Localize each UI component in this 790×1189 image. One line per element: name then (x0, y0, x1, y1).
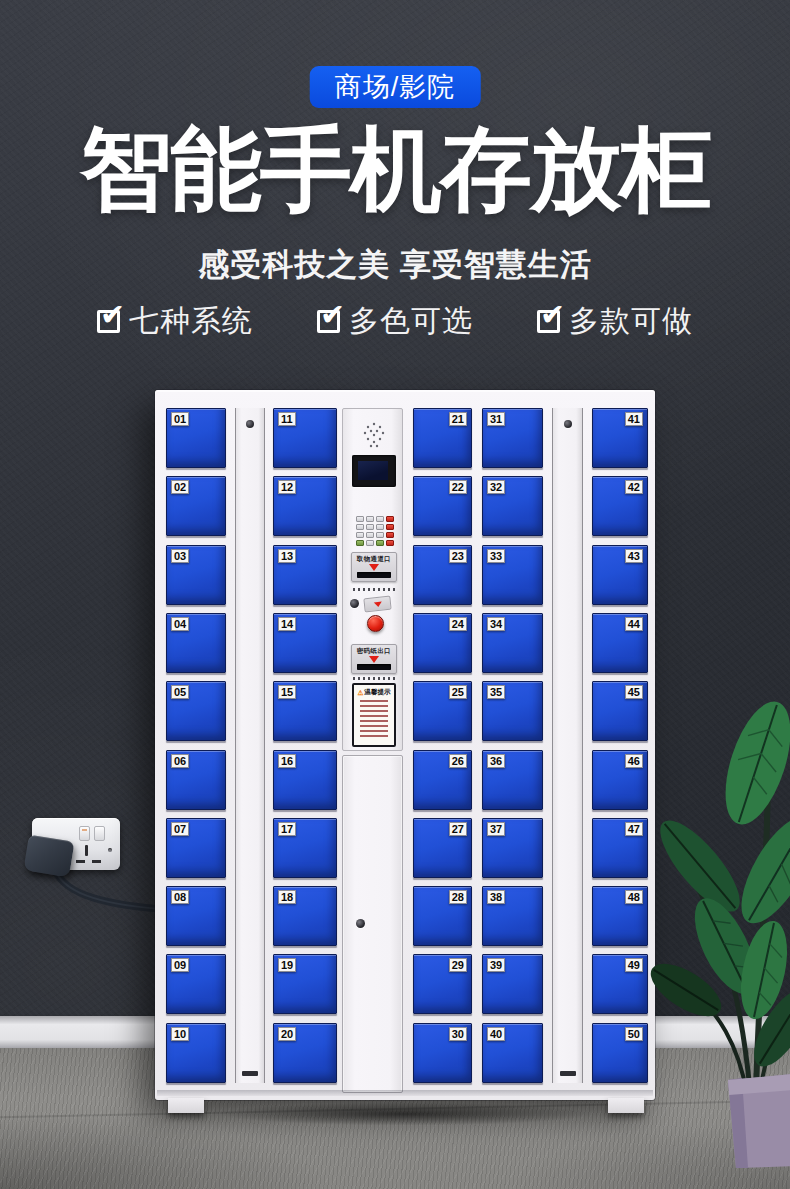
locker-door-07: 07 (166, 818, 226, 878)
door-number-tag: 11 (278, 412, 296, 426)
keypad-key (386, 540, 394, 546)
checkbox-icon: ✔ (317, 310, 340, 333)
door-number-tag: 07 (171, 822, 189, 836)
door-number-tag: 44 (625, 617, 643, 631)
locker-door-35: 35 (482, 681, 543, 741)
keypad-key (356, 532, 364, 538)
door-number-tag: 21 (449, 412, 467, 426)
locker-door-19: 19 (273, 954, 337, 1014)
door-number-tag: 39 (487, 958, 505, 972)
warning-title-text: 温馨提示 (364, 687, 391, 697)
lock-strip (552, 408, 583, 1083)
lock-icon (356, 919, 365, 928)
warning-notice: ⚠ 温馨提示 (352, 683, 396, 747)
door-number-tag: 04 (171, 617, 189, 631)
check-icon: ✔ (540, 300, 565, 330)
pickup-slot: 取物通道口 (351, 552, 397, 582)
keypad-key (366, 532, 374, 538)
subtitle: 感受科技之美 享受智慧生活 (0, 244, 790, 286)
locker-door-13: 13 (273, 545, 337, 605)
door-number-tag: 16 (278, 754, 296, 768)
slot-opening (357, 572, 391, 578)
door-number-tag: 30 (449, 1027, 467, 1041)
potted-plant (630, 698, 790, 1188)
vent-dots (353, 588, 395, 591)
lock-strip (235, 408, 265, 1083)
locker-door-14: 14 (273, 613, 337, 673)
cabinet-floor-shadow (148, 1098, 662, 1130)
door-number-tag: 43 (625, 549, 643, 563)
door-number-tag: 32 (487, 480, 505, 494)
locker-door-25: 25 (413, 681, 472, 741)
door-number-tag: 19 (278, 958, 296, 972)
feature-label: 多款可做 (569, 301, 693, 342)
vent-dots (353, 677, 395, 680)
door-number-tag: 45 (625, 685, 643, 699)
door-number-tag: 34 (487, 617, 505, 631)
page-title: 智能手机存放柜 (0, 116, 790, 222)
door-number-tag: 37 (487, 822, 505, 836)
keypad-key (366, 540, 374, 546)
feature-list: ✔ 七种系统 ✔ 多色可选 ✔ 多款可做 (0, 301, 790, 342)
door-number-tag: 31 (487, 412, 505, 426)
locker-door-39: 39 (482, 954, 543, 1014)
strip-notch (242, 1071, 258, 1076)
door-number-tag: 26 (449, 754, 467, 768)
door-number-tag: 12 (278, 480, 296, 494)
locker-door-42: 42 (592, 476, 648, 536)
locker-door-02: 02 (166, 476, 226, 536)
door-number-tag: 41 (625, 412, 643, 426)
socket-switch (94, 826, 105, 841)
door-number-tag: 02 (171, 480, 189, 494)
lcd-screen (352, 455, 396, 487)
keypad-key (376, 524, 384, 530)
door-number-tag: 40 (487, 1027, 505, 1041)
door-number-tag: 25 (449, 685, 467, 699)
locker-door-33: 33 (482, 545, 543, 605)
door-number-tag: 01 (171, 412, 189, 426)
locker-door-37: 37 (482, 818, 543, 878)
keypad (356, 516, 394, 546)
locker-door-15: 15 (273, 681, 337, 741)
keypad-key (376, 516, 384, 522)
locker-door-34: 34 (482, 613, 543, 673)
door-number-tag: 35 (487, 685, 505, 699)
socket-indicator (108, 848, 112, 852)
power-plug (23, 835, 74, 878)
warning-title: ⚠ 温馨提示 (357, 687, 391, 697)
check-icon: ✔ (320, 300, 345, 330)
locker-door-17: 17 (273, 818, 337, 878)
locker-door-44: 44 (592, 613, 648, 673)
socket-pin-hole (85, 845, 88, 856)
checkbox-icon: ✔ (97, 310, 120, 333)
locker-door-36: 36 (482, 750, 543, 810)
password-paper-slot: 密码纸出口 (351, 644, 397, 674)
keypad-key (376, 540, 384, 546)
locker-door-16: 16 (273, 750, 337, 810)
locker-door-26: 26 (413, 750, 472, 810)
down-arrow-icon (369, 564, 379, 571)
door-number-tag: 10 (171, 1027, 189, 1041)
keypad-key (386, 524, 394, 530)
locker-door-27: 27 (413, 818, 472, 878)
down-arrow-icon (373, 602, 381, 608)
keypad-key (386, 516, 394, 522)
keypad-key (366, 516, 374, 522)
cabinet-base-shadow (157, 1090, 653, 1096)
checkbox-icon: ✔ (537, 310, 560, 333)
locker-door-18: 18 (273, 886, 337, 946)
door-number-tag: 28 (449, 890, 467, 904)
locker-door-30: 30 (413, 1023, 472, 1083)
locker-door-40: 40 (482, 1023, 543, 1083)
locker-door-05: 05 (166, 681, 226, 741)
door-number-tag: 06 (171, 754, 189, 768)
locker-door-08: 08 (166, 886, 226, 946)
door-number-tag: 13 (278, 549, 296, 563)
door-number-tag: 03 (171, 549, 189, 563)
speaker-grille-icon (360, 420, 388, 450)
keypad-key (366, 524, 374, 530)
lock-icon (246, 420, 254, 428)
smart-locker-cabinet: 0102030405060708091011121314151617181920… (155, 390, 655, 1100)
door-number-tag: 22 (449, 480, 467, 494)
locker-door-29: 29 (413, 954, 472, 1014)
lock-icon (350, 599, 359, 608)
keypad-key (356, 540, 364, 546)
password-slot-label: 密码纸出口 (356, 647, 393, 654)
button-label (363, 596, 391, 613)
check-icon: ✔ (100, 300, 125, 330)
locker-door-06: 06 (166, 750, 226, 810)
locker-door-10: 10 (166, 1023, 226, 1083)
feature-item: ✔ 多色可选 (317, 301, 473, 342)
center-service-door (342, 755, 403, 1093)
door-number-tag: 09 (171, 958, 189, 972)
door-number-tag: 29 (449, 958, 467, 972)
down-arrow-icon (369, 656, 379, 663)
socket-switch (79, 826, 90, 841)
pickup-slot-label: 取物通道口 (356, 555, 393, 562)
door-number-tag: 24 (449, 617, 467, 631)
door-number-tag: 17 (278, 822, 296, 836)
slot-opening (357, 664, 391, 670)
locker-door-12: 12 (273, 476, 337, 536)
feature-item: ✔ 七种系统 (97, 301, 253, 342)
warning-icon: ⚠ (357, 689, 363, 696)
locker-door-22: 22 (413, 476, 472, 536)
lcd-display (358, 461, 388, 480)
feature-label: 七种系统 (129, 301, 253, 342)
door-number-tag: 15 (278, 685, 296, 699)
door-number-tag: 33 (487, 549, 505, 563)
locker-door-32: 32 (482, 476, 543, 536)
locker-door-28: 28 (413, 886, 472, 946)
locker-door-04: 04 (166, 613, 226, 673)
locker-door-23: 23 (413, 545, 472, 605)
locker-door-21: 21 (413, 408, 472, 468)
door-number-tag: 27 (449, 822, 467, 836)
warning-fine-print (360, 700, 388, 740)
door-number-tag: 18 (278, 890, 296, 904)
locker-door-09: 09 (166, 954, 226, 1014)
door-number-tag: 05 (171, 685, 189, 699)
locker-door-41: 41 (592, 408, 648, 468)
locker-door-24: 24 (413, 613, 472, 673)
door-number-tag: 14 (278, 617, 296, 631)
door-number-tag: 38 (487, 890, 505, 904)
locker-door-03: 03 (166, 545, 226, 605)
strip-notch (560, 1071, 576, 1076)
door-number-tag: 08 (171, 890, 189, 904)
cabinet-foot (168, 1098, 204, 1113)
locker-door-38: 38 (482, 886, 543, 946)
feature-item: ✔ 多款可做 (537, 301, 693, 342)
door-number-tag: 36 (487, 754, 505, 768)
door-number-tag: 20 (278, 1027, 296, 1041)
locker-door-11: 11 (273, 408, 337, 468)
product-banner: 0102030405060708091011121314151617181920… (0, 0, 790, 1189)
locker-door-31: 31 (482, 408, 543, 468)
keypad-key (376, 532, 384, 538)
door-number-tag: 23 (449, 549, 467, 563)
locker-door-01: 01 (166, 408, 226, 468)
keypad-key (356, 524, 364, 530)
feature-label: 多色可选 (349, 301, 473, 342)
lock-icon (564, 420, 572, 428)
door-number-tag: 42 (625, 480, 643, 494)
locker-door-43: 43 (592, 545, 648, 605)
locker-door-20: 20 (273, 1023, 337, 1083)
control-panel: 取物通道口 密码纸出口 ⚠ 温馨提示 (342, 408, 403, 751)
red-round-button (367, 615, 384, 632)
keypad-key (356, 516, 364, 522)
category-badge: 商场/影院 (310, 66, 481, 108)
keypad-key (386, 532, 394, 538)
